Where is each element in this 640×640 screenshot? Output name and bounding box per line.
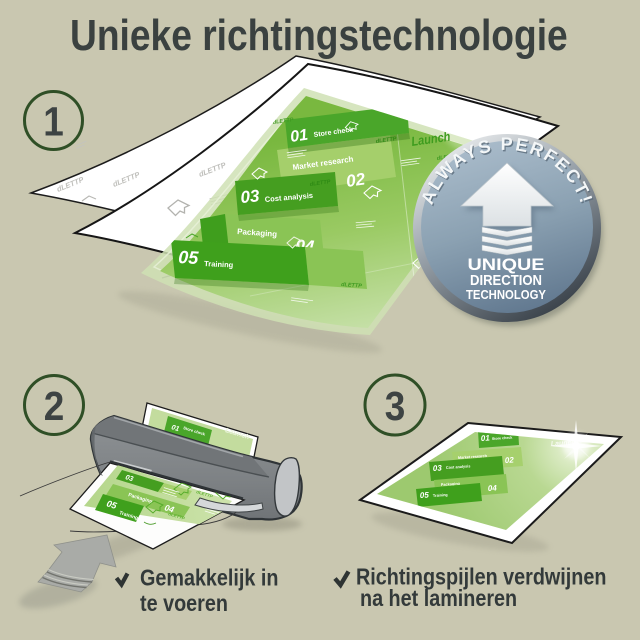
svg-text:3: 3 <box>385 384 406 429</box>
svg-text:2: 2 <box>44 384 65 429</box>
svg-text:Training: Training <box>204 259 234 270</box>
svg-text:TECHNOLOGY: TECHNOLOGY <box>466 287 546 302</box>
svg-text:02: 02 <box>505 455 515 465</box>
svg-text:na het lamineren: na het lamineren <box>360 586 517 612</box>
svg-text:03: 03 <box>433 463 443 473</box>
svg-text:03: 03 <box>240 186 261 207</box>
svg-text:Gemakkelijk in: Gemakkelijk in <box>140 565 278 591</box>
svg-text:05: 05 <box>178 247 200 268</box>
svg-text:01: 01 <box>481 433 491 443</box>
svg-text:04: 04 <box>488 483 498 493</box>
svg-text:Unieke richtingstechnologie: Unieke richtingstechnologie <box>70 10 568 60</box>
svg-text:05: 05 <box>420 490 430 500</box>
svg-text:1: 1 <box>43 100 64 145</box>
svg-text:te voeren: te voeren <box>140 591 228 617</box>
svg-text:01: 01 <box>289 127 309 146</box>
svg-text:02: 02 <box>345 169 367 191</box>
